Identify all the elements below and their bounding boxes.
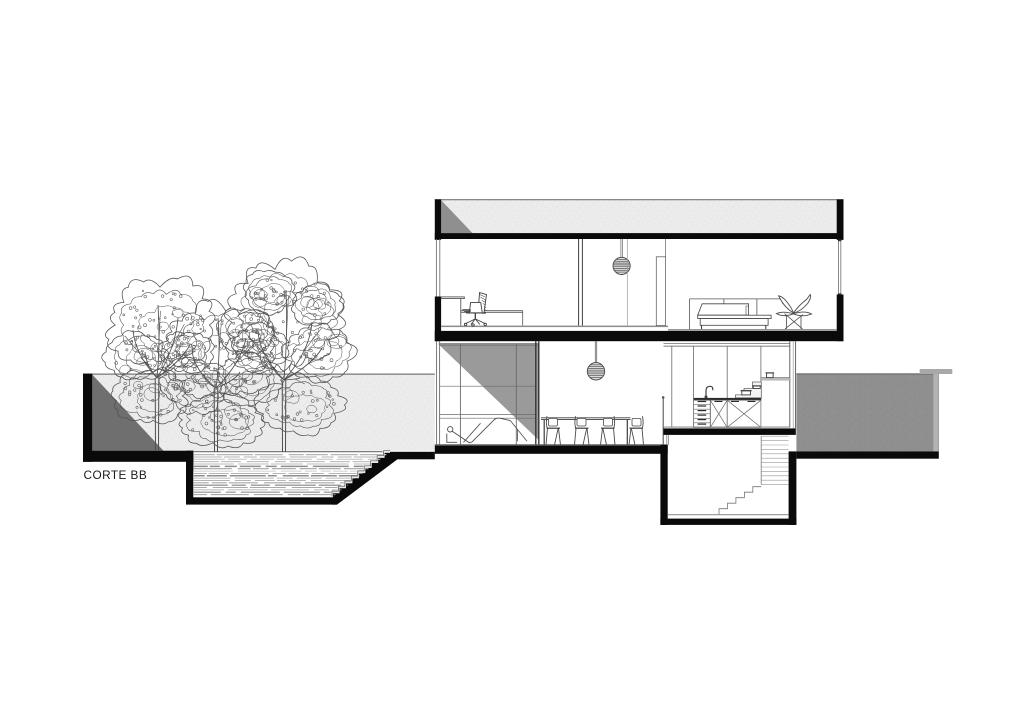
svg-text:CORTE BB: CORTE BB	[84, 468, 148, 482]
